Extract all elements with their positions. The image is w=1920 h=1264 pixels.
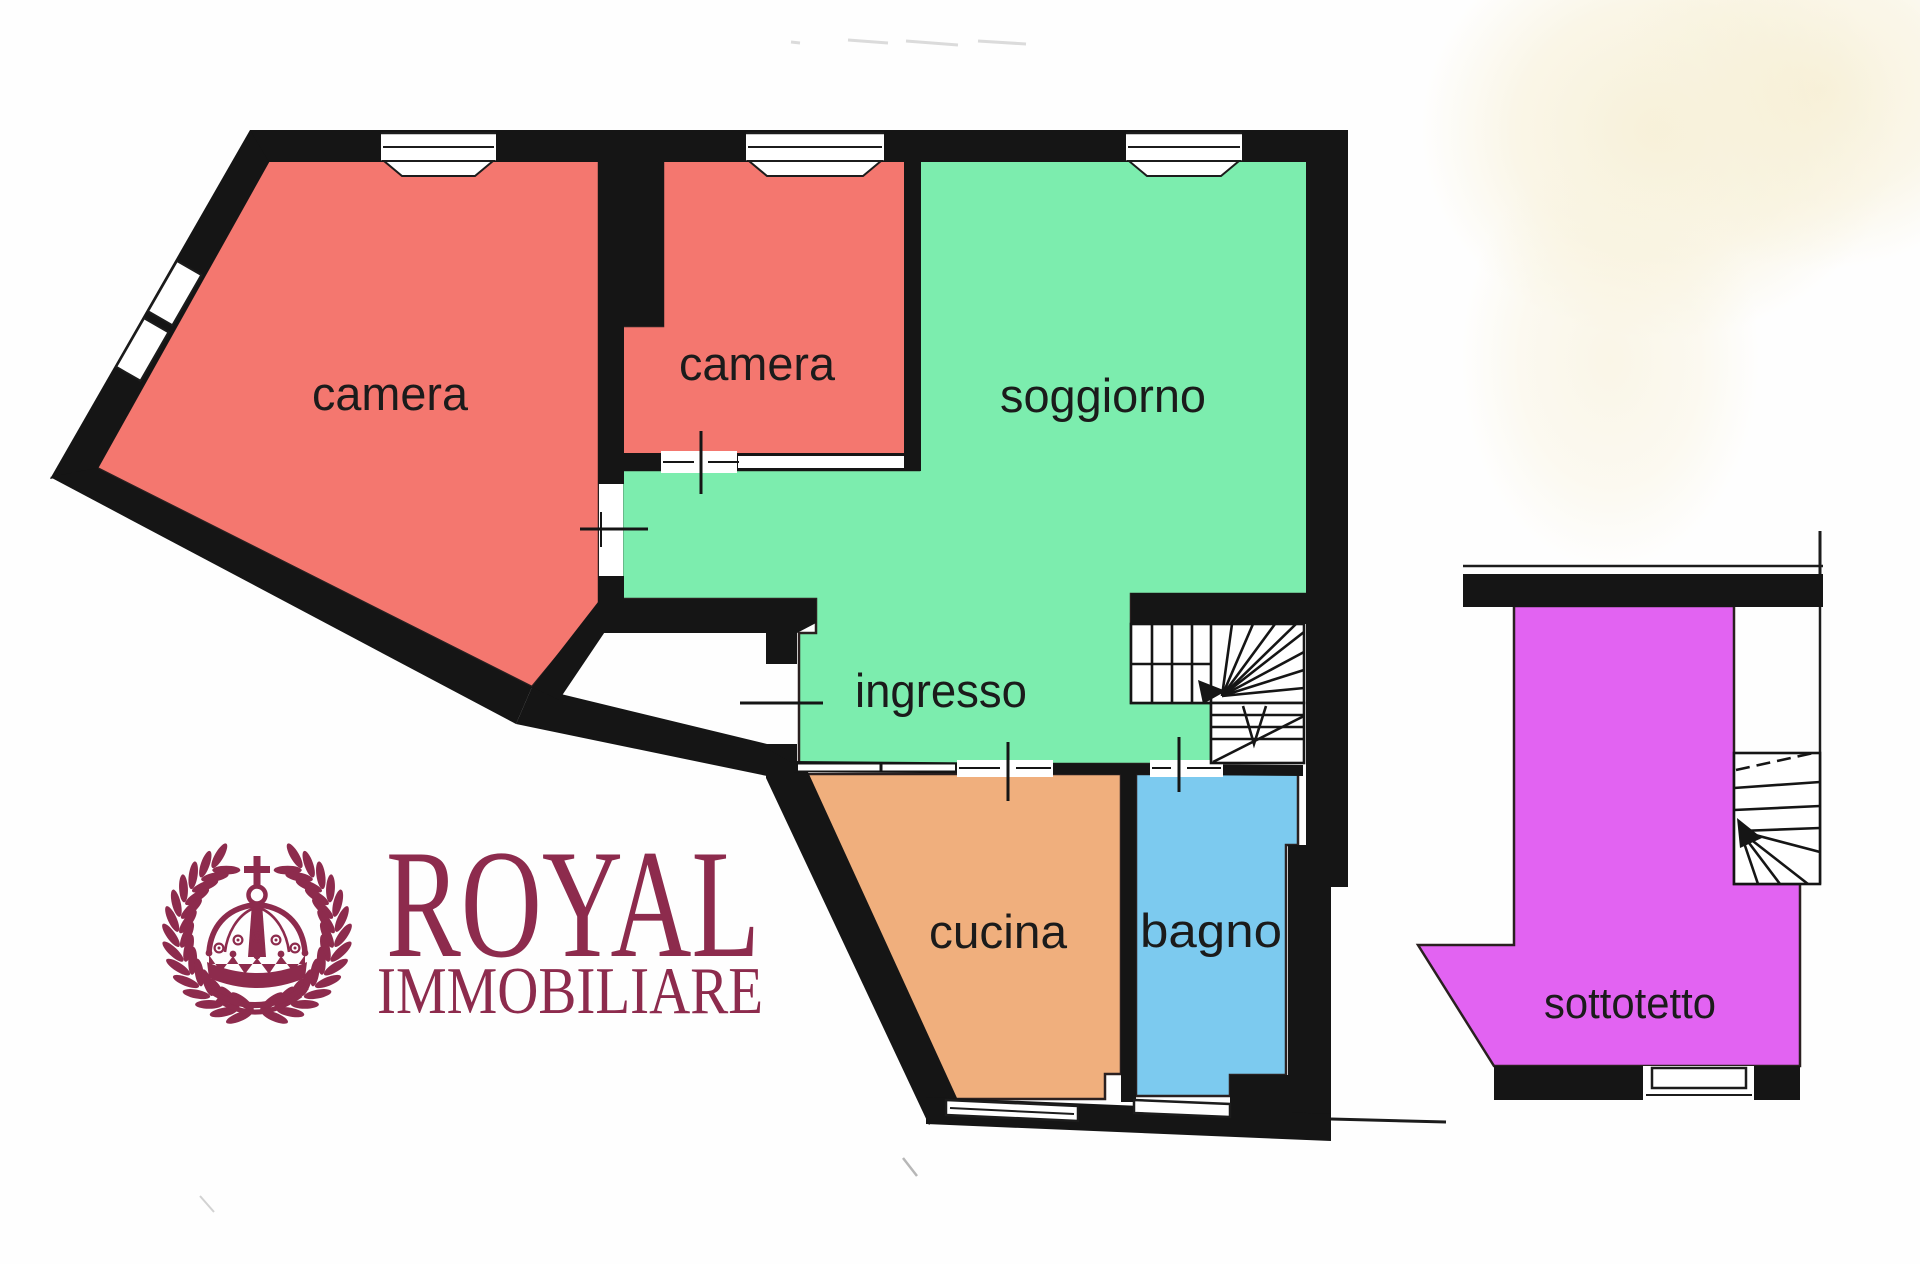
svg-text:soggiorno: soggiorno (1000, 369, 1206, 422)
svg-text:camera: camera (312, 367, 469, 420)
svg-text:ingresso: ingresso (855, 664, 1027, 717)
svg-text:IMMOBILIARE: IMMOBILIARE (377, 953, 763, 1028)
svg-text:cucina: cucina (929, 905, 1068, 958)
svg-text:sottotetto: sottotetto (1544, 979, 1716, 1028)
svg-text:bagno: bagno (1140, 904, 1282, 957)
svg-text:camera: camera (679, 337, 836, 390)
